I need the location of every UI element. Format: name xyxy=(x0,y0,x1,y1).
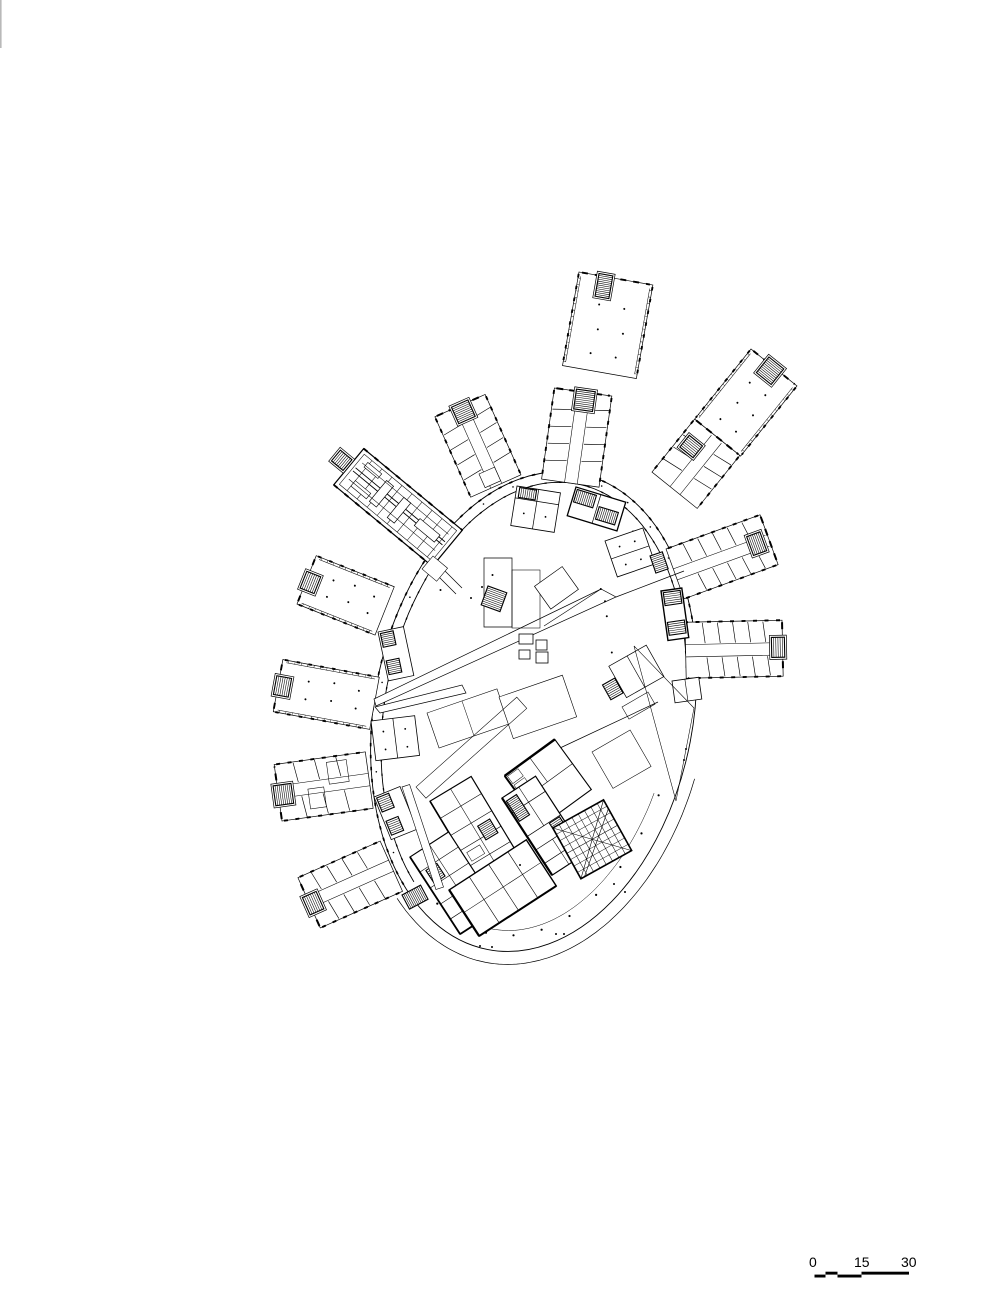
svg-text:30: 30 xyxy=(901,1254,917,1270)
svg-text:0: 0 xyxy=(809,1254,817,1270)
svg-text:15: 15 xyxy=(854,1254,870,1270)
